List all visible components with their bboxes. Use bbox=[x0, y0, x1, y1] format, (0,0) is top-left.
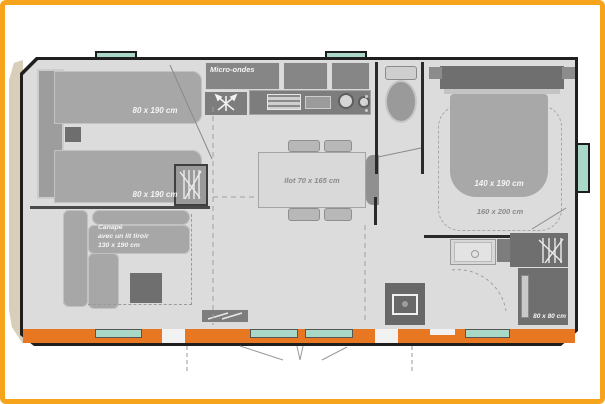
single-bed-top-label: 80 x 190 cm bbox=[105, 106, 205, 115]
window-bottom-2 bbox=[250, 329, 298, 338]
hob-icon bbox=[267, 94, 301, 110]
deck-notch bbox=[430, 329, 455, 335]
upper-cabinet-2 bbox=[331, 62, 370, 90]
upper-cabinet bbox=[283, 62, 328, 90]
microwave-label: Micro-ondes bbox=[210, 65, 255, 74]
bathroom-wall bbox=[424, 235, 512, 238]
bathroom-wardrobe bbox=[510, 233, 568, 267]
extractor-hood-icon bbox=[205, 92, 247, 115]
knob bbox=[365, 95, 368, 98]
coffee-table bbox=[130, 273, 162, 303]
water-heater bbox=[385, 283, 425, 325]
chair bbox=[324, 140, 352, 152]
knob bbox=[365, 102, 368, 105]
bathroom-cabinet bbox=[497, 239, 511, 262]
shower-door bbox=[521, 275, 529, 318]
sink-bowl-small bbox=[358, 96, 370, 108]
window-bottom-4 bbox=[465, 329, 510, 338]
wc-wall-stub bbox=[374, 197, 377, 225]
double-bed-label: 140 x 190 cm bbox=[455, 179, 543, 188]
shower-label: 80 x 80 cm bbox=[520, 313, 566, 320]
drain-icon bbox=[471, 250, 479, 258]
sink-bowl-large bbox=[338, 93, 354, 109]
hangers-icon bbox=[510, 233, 568, 267]
access-steps-lines bbox=[0, 344, 605, 384]
knob bbox=[365, 109, 368, 112]
entry-step bbox=[202, 310, 248, 322]
nightstand-left bbox=[429, 67, 442, 79]
wc-wall-left bbox=[375, 62, 378, 174]
nightstand-right bbox=[562, 67, 575, 79]
microwave-cabinet: Micro-ondes bbox=[205, 62, 280, 90]
wc-wall-right bbox=[421, 62, 424, 174]
sofa-left-backrest bbox=[63, 210, 88, 307]
water-heater-icon bbox=[392, 294, 418, 315]
chair bbox=[288, 208, 320, 221]
entrance-door-secondary bbox=[375, 329, 398, 343]
floor-plan-page: Micro-ondes Ilot 70 x 165 cm bbox=[0, 0, 605, 404]
entry-step-icon bbox=[202, 310, 248, 322]
double-bed-headboard bbox=[440, 66, 564, 89]
sofa-label: Canapé avec un lit tiroir 130 x 190 cm bbox=[98, 224, 193, 250]
bed-zone-label: 160 x 200 cm bbox=[445, 208, 555, 217]
twin-bedroom-closet bbox=[174, 164, 208, 206]
bedroom-living-divider-wall bbox=[30, 206, 210, 209]
water-heater-dot bbox=[402, 301, 408, 307]
washbasin-icon bbox=[454, 242, 492, 262]
chair bbox=[324, 208, 352, 221]
washbasin bbox=[450, 239, 496, 265]
toilet-tank bbox=[385, 66, 417, 80]
single-bed-bottom-label: 80 x 190 cm bbox=[105, 190, 205, 199]
island-dimensions-label: Ilot 70 x 165 cm bbox=[284, 176, 339, 185]
worktop-board bbox=[305, 96, 331, 109]
chair bbox=[288, 140, 320, 152]
single-bed-top bbox=[54, 71, 202, 124]
toilet-icon bbox=[385, 80, 417, 123]
extractor-hood bbox=[205, 92, 247, 115]
nightstand bbox=[65, 127, 81, 142]
floor-plan: Micro-ondes Ilot 70 x 165 cm bbox=[20, 57, 578, 346]
entrance-door-main bbox=[162, 329, 185, 343]
dining-island-table: Ilot 70 x 165 cm bbox=[258, 152, 366, 208]
window-bottom-1 bbox=[95, 329, 142, 338]
window-bottom-3 bbox=[305, 329, 353, 338]
